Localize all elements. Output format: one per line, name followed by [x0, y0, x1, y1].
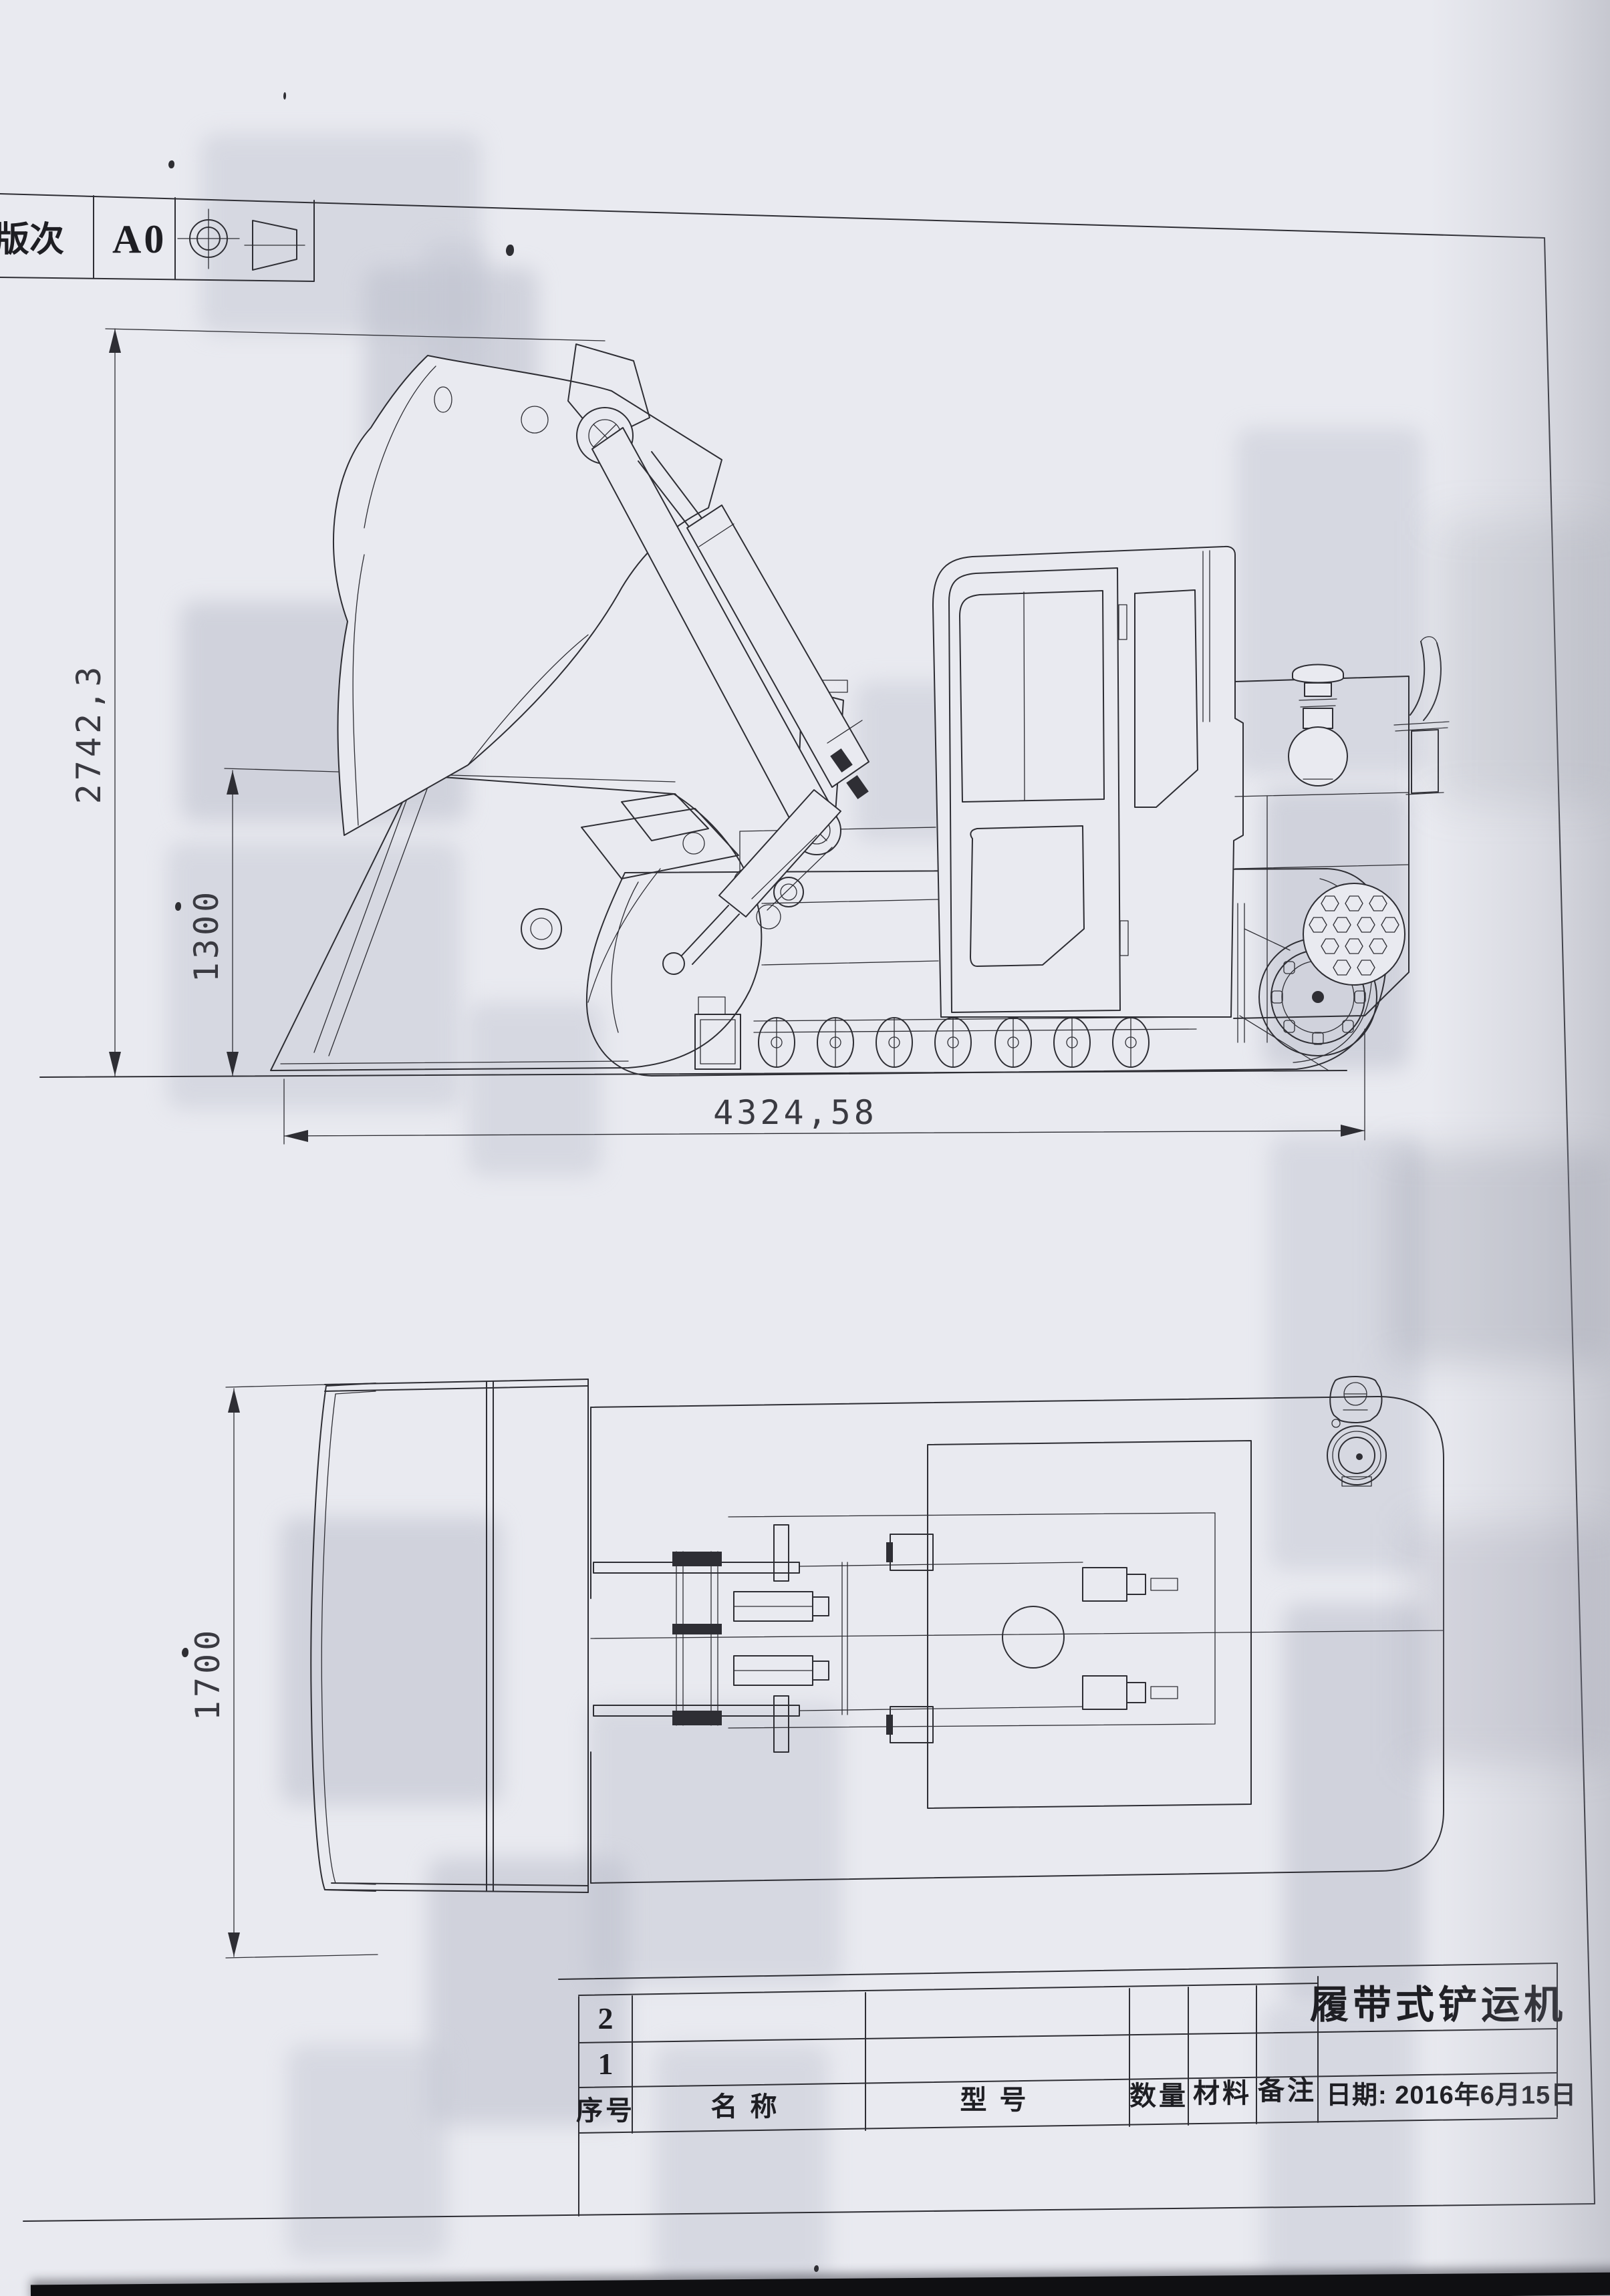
dim-overall-width-text: 1700 — [188, 1627, 227, 1721]
perforated-engine-panel — [1303, 883, 1405, 985]
col-header-quantity: 数量 — [1129, 2082, 1188, 2111]
dimension-overall-width: 1700 — [188, 1383, 378, 1958]
ink-speck — [814, 2265, 819, 2272]
raised-bucket — [333, 344, 722, 835]
plan-bucket — [311, 1379, 588, 1892]
scanned-engineering-drawing: 版次 A0 2742,3 — [0, 0, 1610, 2296]
item-row-1: 1 — [598, 2047, 614, 2081]
paper-fold-shadow — [1410, 1524, 1610, 1764]
first-angle-projection-cone-icon — [245, 221, 305, 270]
paper-fold-shadow — [1389, 1149, 1610, 1363]
col-header-name: 名 称 — [710, 2092, 779, 2122]
ink-speck — [168, 160, 174, 168]
boom-arm — [592, 428, 837, 837]
engine-deck — [1234, 637, 1449, 1042]
revision-value: A0 — [112, 217, 166, 261]
scan-edge-shadow — [1430, 0, 1610, 2296]
air-cleaner — [1289, 665, 1347, 786]
item-row-2: 2 — [598, 2001, 614, 2035]
first-angle-projection-circle-icon — [178, 209, 239, 269]
drawing-frame — [0, 194, 1595, 2221]
col-header-material: 材料 — [1193, 2079, 1252, 2108]
dim-overall-height-text: 2742,3 — [70, 664, 108, 805]
ground-line — [40, 1070, 1347, 1077]
boom-assembly — [592, 428, 869, 974]
revision-block: 版次 A0 — [0, 196, 314, 281]
dimension-bucket-height: 1300 — [187, 768, 675, 1076]
operator-cab — [933, 547, 1243, 1017]
ink-speck — [175, 902, 181, 911]
plan-linkage-assembly — [593, 1525, 1178, 1752]
col-header-model: 型 号 — [960, 2086, 1029, 2115]
col-header-index: 序号 — [576, 2096, 635, 2126]
lift-cylinder — [663, 790, 841, 974]
hydraulic-cap — [1327, 1426, 1386, 1486]
side-elevation-view: 2742,3 1300 4324,58 — [40, 329, 1449, 1144]
revision-label: 版次 — [0, 221, 64, 259]
dim-bucket-height-text: 1300 — [187, 889, 226, 982]
col-header-remark: 备注 — [1258, 2076, 1317, 2106]
title-block-table: 2 1 序号 名 称 型 号 数量 材料 备注 日期: 2016年6月15日 履… — [559, 1963, 1577, 2216]
road-wheels — [759, 1018, 1149, 1067]
dim-overall-length-text: 4324,58 — [713, 1093, 878, 1132]
ink-speck — [182, 1648, 188, 1657]
plan-view: 1700 — [188, 1377, 1444, 1958]
fuel-cap — [1330, 1377, 1381, 1427]
ink-speck — [283, 92, 286, 100]
ink-speck — [506, 245, 514, 256]
drawing-canvas: 版次 A0 2742,3 — [0, 0, 1610, 2296]
paper-fold-shadow — [1436, 521, 1610, 802]
